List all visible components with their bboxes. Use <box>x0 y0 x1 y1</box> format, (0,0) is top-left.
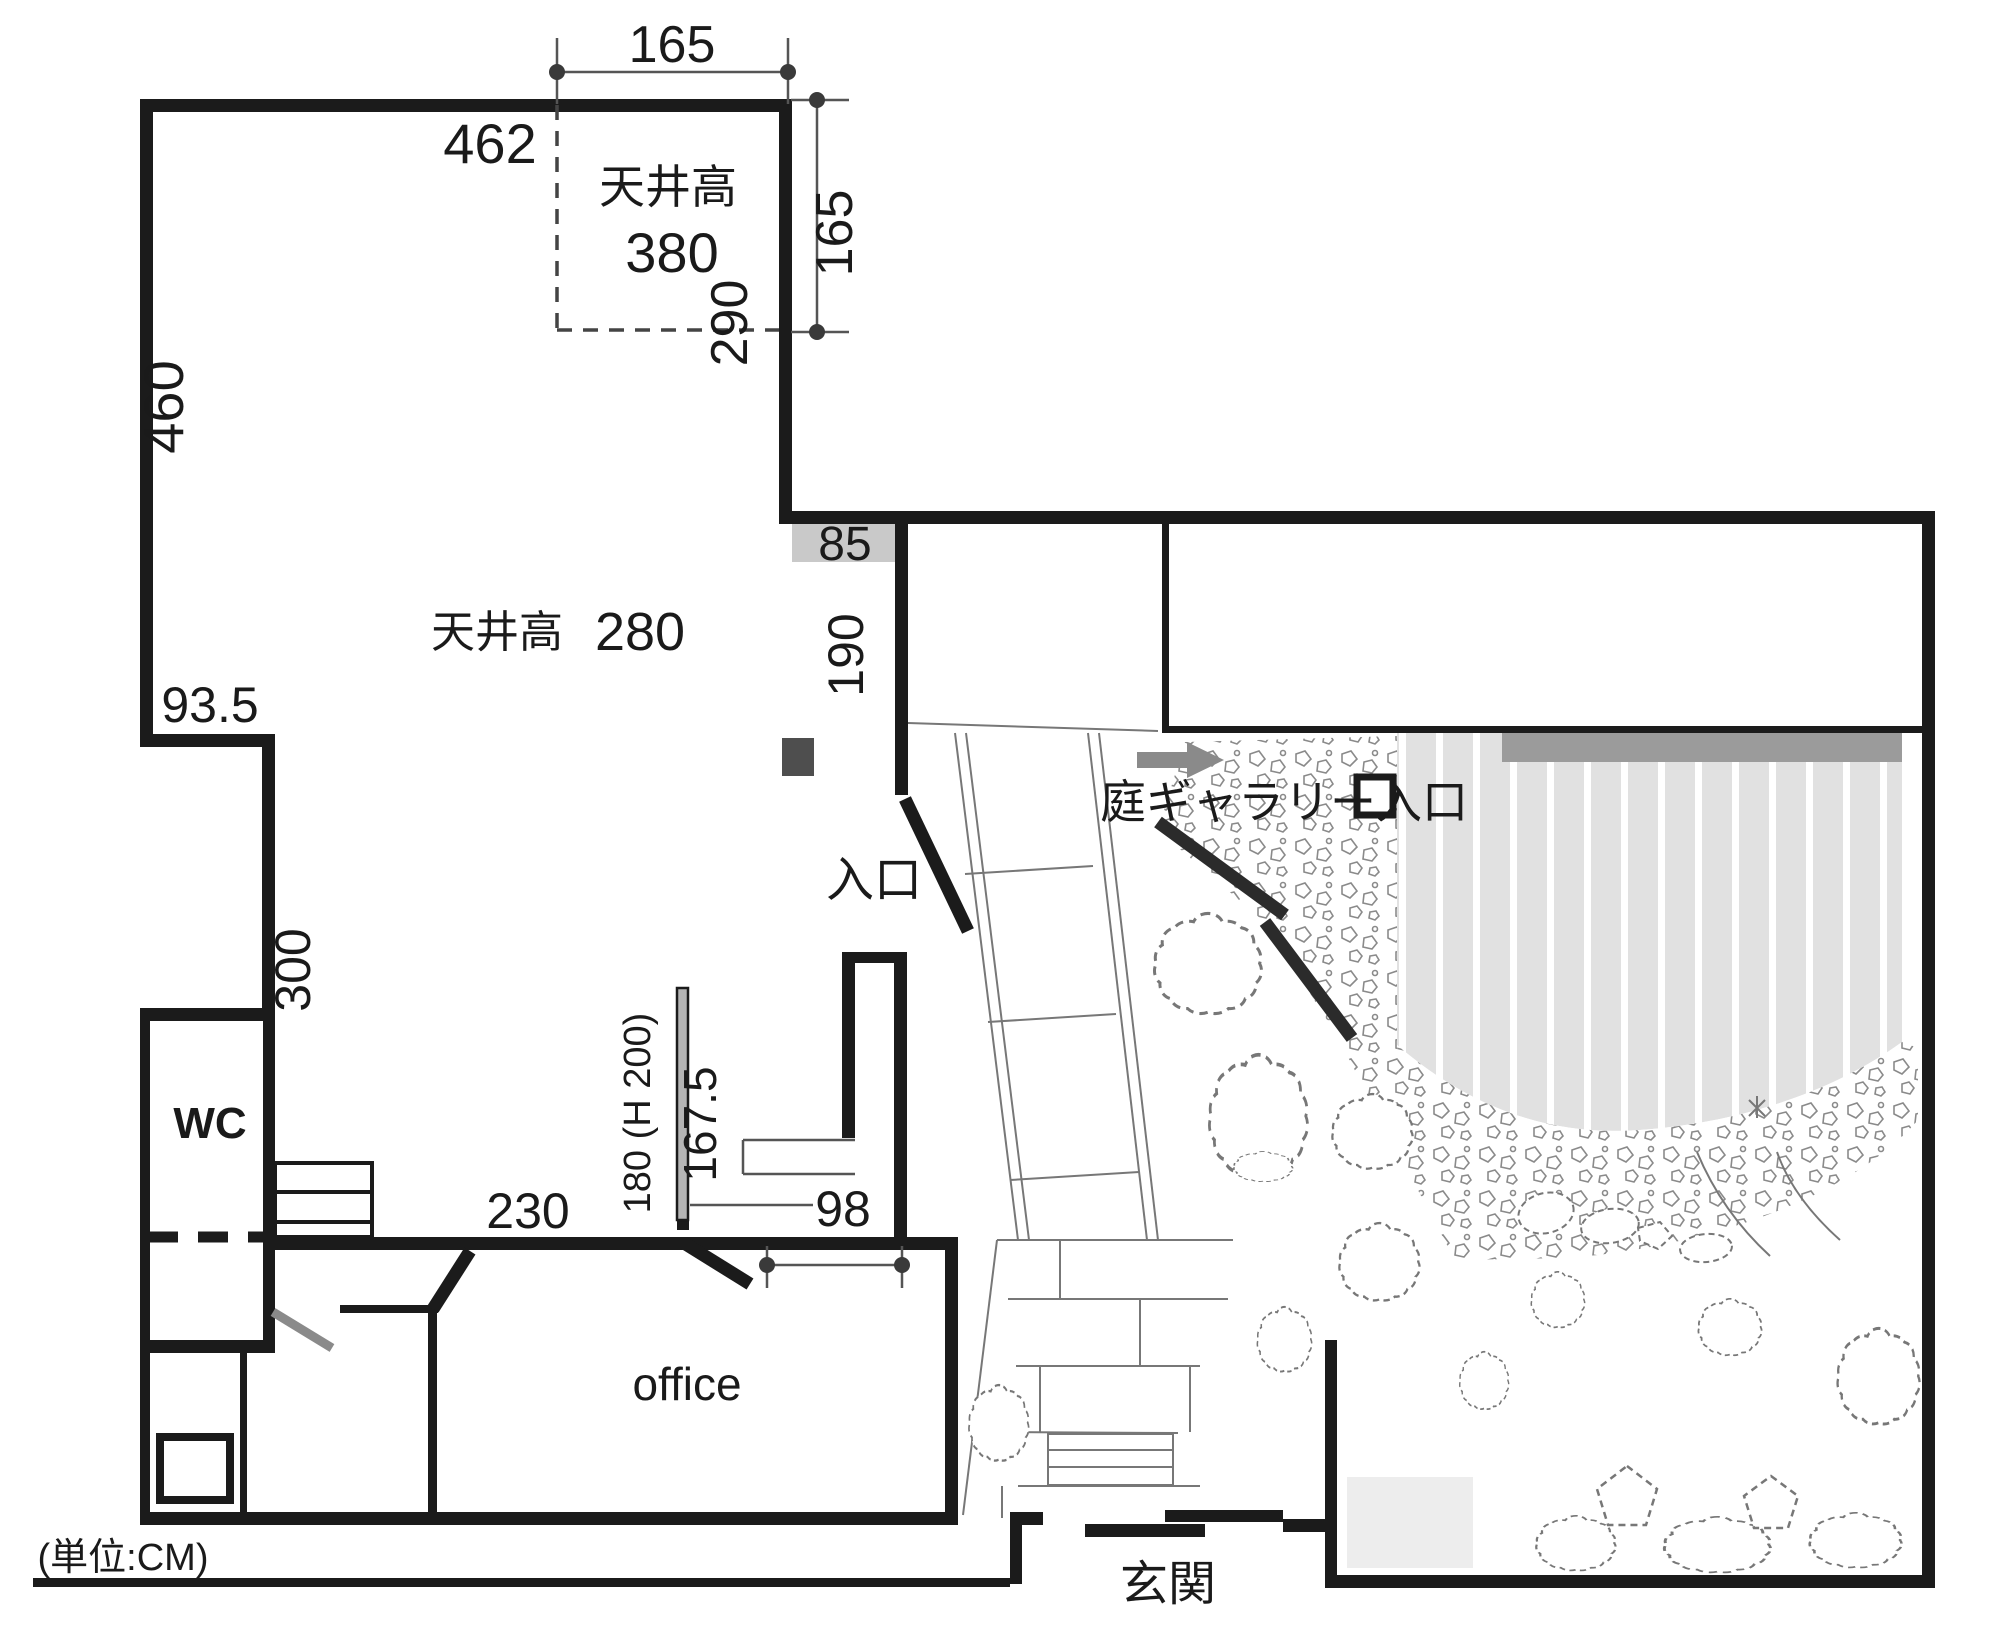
wall-niche-left <box>842 952 855 1138</box>
wall-office-right <box>945 1237 958 1525</box>
ceiling-280-value: 280 <box>595 602 685 662</box>
wall-wc-top <box>140 1008 275 1021</box>
dim-300: 300 <box>265 928 321 1011</box>
dim-190: 190 <box>818 613 874 696</box>
dim-462: 462 <box>443 112 536 175</box>
wall-wc-left <box>140 1008 150 1525</box>
wall-office-top <box>275 1237 958 1250</box>
wall-upper-right <box>779 99 792 524</box>
ceiling-280-label: 天井高 <box>431 608 563 657</box>
genkan-sliding-leaf-lower <box>1085 1524 1205 1537</box>
entrance-label: 入口 <box>826 854 922 907</box>
dim-230: 230 <box>486 1183 569 1239</box>
garden-gallery-entrance-label: 庭ギャラリー入口 <box>1100 776 1468 828</box>
wall-office-partition-v <box>428 1305 437 1515</box>
wall-garden-top <box>779 511 1935 524</box>
dim-460: 460 <box>132 360 195 453</box>
dim-165-top: 165 <box>629 16 716 74</box>
shelf-unit <box>275 1163 372 1237</box>
wall-bottom <box>140 1512 958 1525</box>
wall-genkan-connector <box>1283 1519 1330 1532</box>
wall-inner-room-bottom <box>1162 726 1927 733</box>
wall-garden-bottom <box>1325 1575 1935 1588</box>
dark-column-marker <box>782 738 814 776</box>
wall-top <box>140 99 792 112</box>
wall-entry-190 <box>895 517 908 795</box>
genkan-sliding-leaf-upper <box>1165 1510 1283 1522</box>
room-office-label: office <box>632 1358 741 1410</box>
floor-plan-page: 165 462 天井高 380 165 290 460 85 天井高 280 1… <box>0 0 2000 1652</box>
dim-290: 290 <box>701 280 759 367</box>
dim-1675: 167.5 <box>674 1066 726 1181</box>
wall-inner-room-left <box>1162 511 1169 732</box>
fixture-square <box>160 1437 230 1500</box>
unit-note: (単位:CM) <box>38 1537 209 1579</box>
ceiling-380-label: 天井高 <box>599 161 737 213</box>
dim-85: 85 <box>818 518 871 571</box>
wall-closet <box>240 1353 247 1520</box>
ceiling-380-value: 380 <box>625 221 718 284</box>
dim-165-right: 165 <box>806 190 864 277</box>
wall-step-935 <box>140 734 275 747</box>
dim-180-h200: 180 (H 200) <box>617 1013 659 1214</box>
wall-niche-right <box>894 952 907 1240</box>
wall-garden-left-lower <box>1325 1340 1337 1588</box>
room-wc-label: WC <box>173 1099 246 1148</box>
room-genkan-label: 玄関 <box>1120 1558 1216 1611</box>
light-gray-patch <box>1347 1477 1473 1568</box>
garden-deck-striped-area <box>1397 733 1902 1131</box>
deck-edge-bar <box>1502 733 1902 762</box>
site-boundary-line <box>33 1578 1010 1587</box>
wall-wc-bottom <box>140 1340 275 1353</box>
dim-935: 93.5 <box>161 677 258 733</box>
dim-98: 98 <box>815 1181 871 1237</box>
wall-office-partition-h <box>340 1305 438 1313</box>
wall-genkan-stub <box>1010 1512 1043 1525</box>
floor-plan-drawing: 165 462 天井高 380 165 290 460 85 天井高 280 1… <box>0 0 2000 1652</box>
wall-garden-right <box>1922 511 1935 1588</box>
